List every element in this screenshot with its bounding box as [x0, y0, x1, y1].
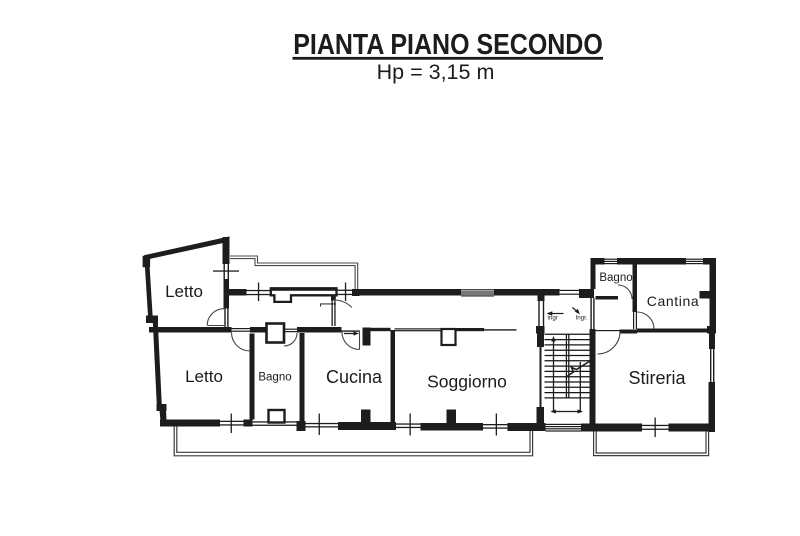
- svg-text:Cucina: Cucina: [326, 367, 383, 387]
- svg-text:Cantina: Cantina: [647, 293, 699, 309]
- svg-text:Bagno: Bagno: [258, 372, 291, 384]
- svg-text:Hp = 3,15 m: Hp = 3,15 m: [377, 60, 495, 84]
- svg-text:Soggiorno: Soggiorno: [427, 372, 507, 392]
- svg-text:Stireria: Stireria: [628, 368, 686, 388]
- svg-text:Letto: Letto: [165, 282, 203, 301]
- svg-text:ingr: ingr: [548, 315, 558, 322]
- svg-text:Bagno: Bagno: [599, 272, 632, 284]
- svg-text:PIANTA PIANO SECONDO: PIANTA PIANO SECONDO: [293, 28, 603, 60]
- svg-text:Letto: Letto: [185, 367, 223, 386]
- svg-text:Ingr.: Ingr.: [576, 315, 588, 322]
